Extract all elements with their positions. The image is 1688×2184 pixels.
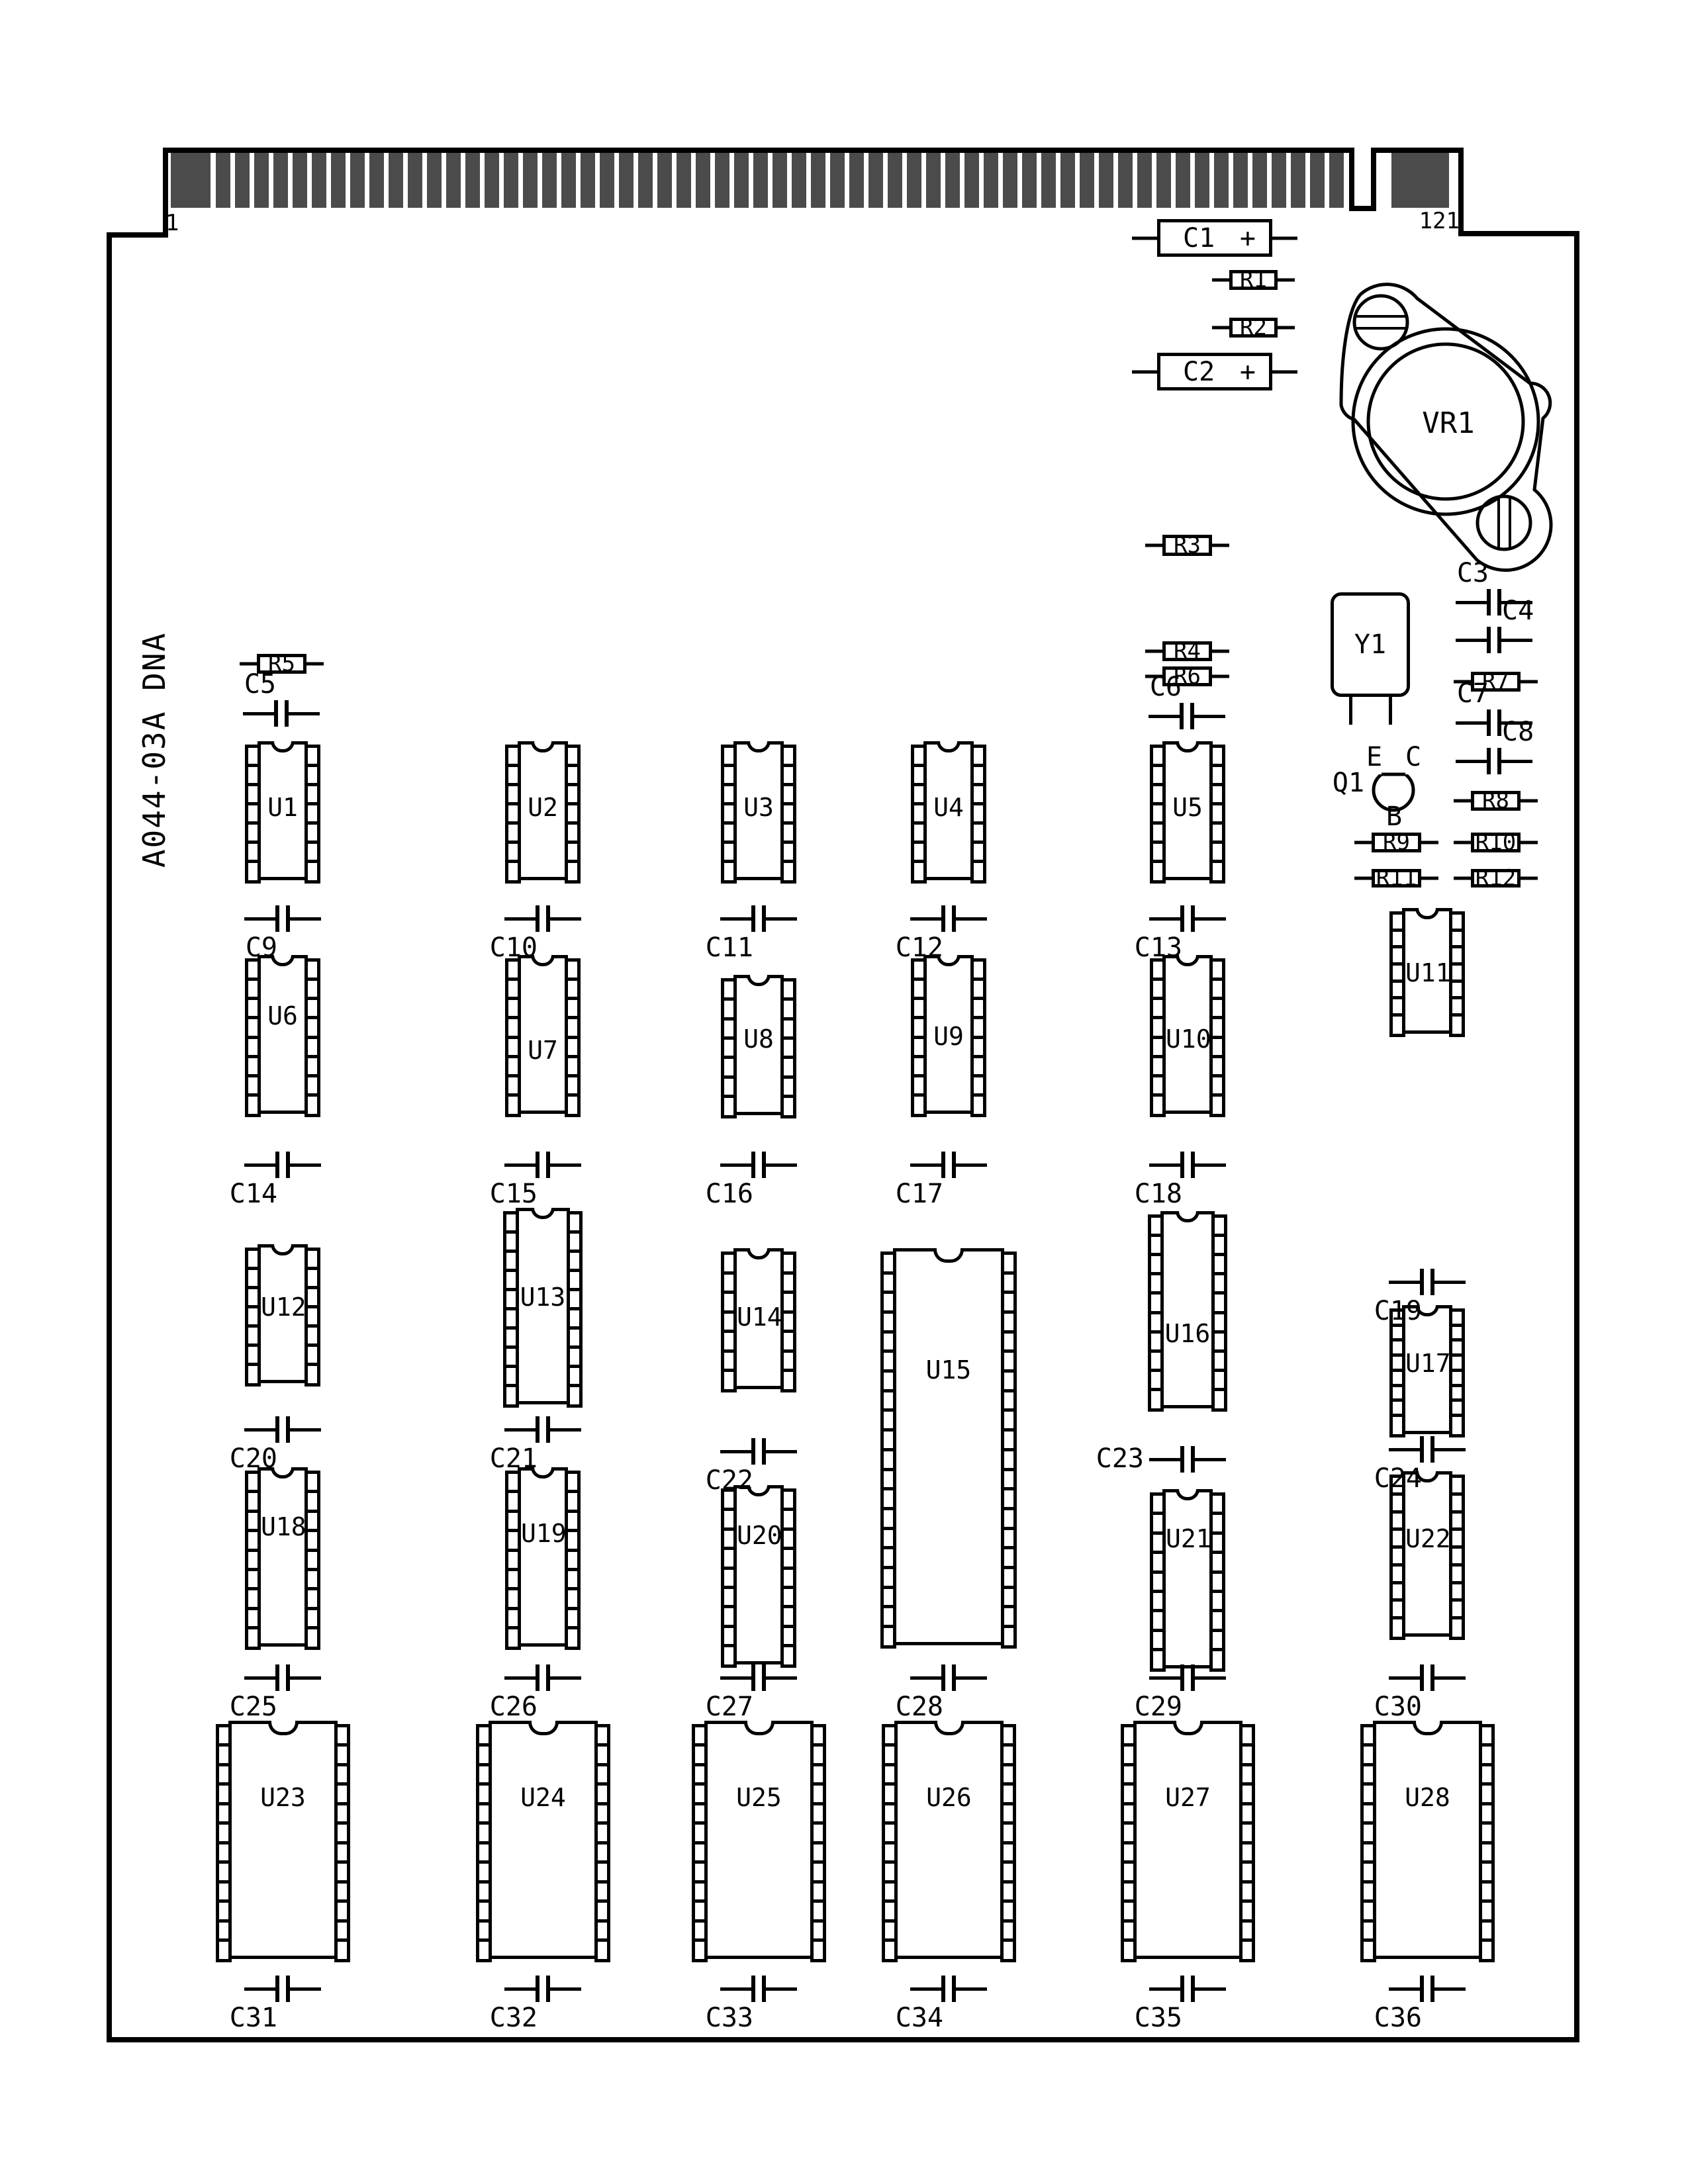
capacitor-C31: C31 <box>244 1976 321 2002</box>
capacitor-plate <box>1191 1664 1195 1691</box>
R2-label: R2 <box>1240 314 1267 341</box>
U15-label: U15 <box>896 1357 1001 1383</box>
capacitor-lead <box>289 712 320 715</box>
ic-pin <box>565 1626 581 1650</box>
capacitor-plate <box>751 905 755 932</box>
capacitor-plate <box>274 700 278 727</box>
ic-pin <box>970 860 986 884</box>
C1-polarity-mark: + <box>1240 223 1256 253</box>
C14-label: C14 <box>230 1181 277 1207</box>
ic-U6: U6 <box>258 955 308 1114</box>
capacitor-plate <box>941 905 945 932</box>
ic-pin <box>692 1938 708 1962</box>
U4-label: U4 <box>927 795 970 820</box>
connector-fingers <box>216 153 1348 208</box>
capacitor-C27: C27 <box>720 1664 797 1691</box>
capacitor-plate <box>1497 589 1501 615</box>
resistor-lead <box>1145 650 1164 653</box>
ic-notch <box>1415 908 1439 919</box>
ic-pin <box>1121 1938 1137 1962</box>
capacitor-plate <box>751 1438 755 1465</box>
ic-pin <box>216 1938 232 1962</box>
capacitor-lead <box>244 1428 275 1432</box>
C17-label: C17 <box>896 1181 943 1207</box>
capacitor-plate <box>275 1152 279 1178</box>
ic-U9: U9 <box>923 955 974 1114</box>
capacitor-plate <box>1180 703 1184 729</box>
ic-U26: U26 <box>894 1721 1004 1959</box>
C35-label: C35 <box>1135 2005 1182 2031</box>
ic-pin <box>721 860 737 884</box>
capacitor-plate <box>1430 1436 1434 1463</box>
ic-U2: U2 <box>518 741 568 880</box>
capacitor-plate <box>1191 1976 1195 2002</box>
resistor-lead <box>1145 544 1164 547</box>
capacitor-C23: C23 <box>1149 1446 1226 1473</box>
U21-label: U21 <box>1166 1526 1209 1551</box>
capacitor-plate <box>751 1664 755 1691</box>
ic-pin <box>565 1093 581 1117</box>
capacitor-lead <box>1149 715 1180 718</box>
ic-pin <box>1389 1616 1405 1640</box>
ic-pin <box>245 860 261 884</box>
capacitor-plate <box>952 905 956 932</box>
C7-label: C7 <box>1457 680 1489 707</box>
ic-notch <box>271 741 295 752</box>
capacitor-lead <box>766 917 797 921</box>
capacitor-lead <box>1149 1163 1180 1167</box>
resistor-lead <box>1519 877 1538 880</box>
ic-U21: U21 <box>1162 1489 1213 1668</box>
U27-label: U27 <box>1137 1785 1239 1810</box>
ic-U13: U13 <box>516 1208 570 1404</box>
capacitor-plate <box>275 905 279 932</box>
C19-label: C19 <box>1374 1298 1422 1324</box>
capacitor-plate <box>275 1664 279 1691</box>
C12-label: C12 <box>896 934 943 961</box>
C3-label: C3 <box>1457 560 1489 586</box>
q1-label: Q1 <box>1321 770 1376 796</box>
capacitor-lead <box>766 1450 797 1453</box>
capacitor-C24: C24 <box>1389 1436 1466 1463</box>
vr1-label: VR1 <box>1409 409 1488 438</box>
capacitor-plate <box>941 1152 945 1178</box>
U18-label: U18 <box>261 1514 305 1539</box>
U9-label: U9 <box>927 1024 970 1049</box>
R10-label: R10 <box>1476 829 1516 856</box>
capacitor-lead <box>956 1163 987 1167</box>
resistor-R3: R3 <box>1162 535 1212 556</box>
ic-pin <box>565 860 581 884</box>
U25-label: U25 <box>708 1785 810 1810</box>
resistor-R8: R8 <box>1471 791 1521 811</box>
resistor-lead <box>1519 799 1538 803</box>
capacitor-plate <box>1487 627 1491 653</box>
capacitor-C14: C14 <box>244 1152 321 1178</box>
capacitor-lead <box>1149 1676 1180 1680</box>
U6-label: U6 <box>261 1003 305 1028</box>
ic-pin <box>780 1369 796 1392</box>
capacitor-C15: C15 <box>504 1152 581 1178</box>
capacitor-lead <box>550 1428 581 1432</box>
R11-label: R11 <box>1376 865 1417 891</box>
capacitor-lead <box>290 1163 321 1167</box>
ic-pin <box>305 860 320 884</box>
ic-pin <box>1209 860 1225 884</box>
ic-U23: U23 <box>228 1721 338 1959</box>
capacitor-plate <box>1497 748 1501 774</box>
capacitor-lead <box>720 1450 751 1453</box>
resistor-lead <box>1454 841 1472 844</box>
capacitor-plate <box>1191 1446 1195 1473</box>
capacitor-plate <box>1180 905 1184 932</box>
ic-pin <box>1150 860 1166 884</box>
capacitor-lead <box>956 1987 987 1991</box>
C30-label: C30 <box>1374 1694 1422 1720</box>
capacitor-plate <box>1420 1976 1424 2002</box>
capacitor-lead <box>1195 917 1226 921</box>
resistor-R1: R1 <box>1229 270 1278 290</box>
ic-pin <box>1150 1093 1166 1117</box>
ic-pin <box>1449 1414 1465 1437</box>
ic-pin <box>1479 1938 1495 1962</box>
capacitor-plate <box>1180 1446 1184 1473</box>
capacitor-lead <box>1501 760 1532 763</box>
C32-label: C32 <box>490 2005 538 2031</box>
C18-label: C18 <box>1135 1181 1182 1207</box>
C13-label: C13 <box>1135 934 1182 961</box>
U26-label: U26 <box>898 1785 1000 1810</box>
C15-label: C15 <box>490 1181 538 1207</box>
ic-notch <box>268 1721 299 1735</box>
ic-notch <box>1176 741 1199 752</box>
ic-pin <box>245 1626 261 1650</box>
ic-U16: U16 <box>1160 1211 1215 1408</box>
capacitor-lead <box>290 1676 321 1680</box>
ic-notch <box>934 1721 964 1735</box>
capacitor-plate <box>1487 748 1491 774</box>
U8-label: U8 <box>737 1026 780 1052</box>
C2-polarity-mark: + <box>1240 357 1256 387</box>
C8-label: C8 <box>1502 719 1534 745</box>
capacitor-lead <box>504 1428 536 1432</box>
capacitor-plate <box>751 1152 755 1178</box>
capacitor-C25: C25 <box>244 1664 321 1691</box>
capacitor-C35: C35 <box>1149 1976 1226 2002</box>
C16-label: C16 <box>706 1181 753 1207</box>
C31-label: C31 <box>230 2005 277 2031</box>
capacitor-lead <box>1195 1987 1226 1991</box>
pcb-assembly-diagram: 1 121 A044-03A DNA Y1 VR1 E C Q1 B U1U2U… <box>0 0 1688 2184</box>
C23-label: C23 <box>1096 1445 1144 1472</box>
U12-label: U12 <box>261 1295 305 1320</box>
capacitor-lead <box>1456 601 1487 604</box>
capacitor-C13: C13 <box>1149 905 1226 932</box>
capacitor-lead <box>550 1987 581 1991</box>
ic-U28: U28 <box>1373 1721 1482 1959</box>
ic-pin <box>505 1093 521 1117</box>
q1-base-label: B <box>1381 803 1407 830</box>
ic-pin <box>911 1093 927 1117</box>
capacitor-lead <box>1456 760 1487 763</box>
capacitor-plate <box>1497 709 1501 736</box>
capacitor-plate <box>536 1152 539 1178</box>
capacitor-lead <box>1149 1458 1180 1461</box>
capacitor-lead <box>910 1163 941 1167</box>
capacitor-C8: C8 <box>1456 748 1532 774</box>
capacitor-plate <box>286 1152 290 1178</box>
capacitor-lead <box>956 1676 987 1680</box>
U7-label: U7 <box>521 1038 565 1063</box>
capacitor-lead <box>1194 715 1225 718</box>
capacitor-plate <box>1180 1664 1184 1691</box>
capacitor-lead <box>550 1676 581 1680</box>
ic-pin <box>1001 1625 1017 1649</box>
capacitor-plate <box>941 1976 945 2002</box>
capacitor-plate <box>941 1664 945 1691</box>
C33-label: C33 <box>706 2005 753 2031</box>
capacitor-lead <box>1434 1676 1466 1680</box>
capacitor-lead <box>910 917 941 921</box>
ic-U4: U4 <box>923 741 974 880</box>
connector-pin1-label: 1 <box>165 212 179 234</box>
U17-label: U17 <box>1405 1351 1449 1376</box>
C10-label: C10 <box>490 934 538 961</box>
capacitor-plate <box>1487 589 1491 615</box>
U22-label: U22 <box>1405 1526 1449 1551</box>
C9-label: C9 <box>246 934 277 961</box>
C26-label: C26 <box>490 1694 538 1720</box>
capacitor-lead <box>1149 917 1180 921</box>
capacitor-lead <box>720 1676 751 1680</box>
y1-label: Y1 <box>1354 629 1386 660</box>
R1-label: R1 <box>1240 267 1267 293</box>
crystal-y1: Y1 <box>1331 592 1410 697</box>
capacitor-lead <box>290 1428 321 1432</box>
C20-label: C20 <box>230 1445 277 1472</box>
connector-end-block-right <box>1391 153 1449 208</box>
ic-pin <box>1239 1938 1255 1962</box>
ic-pin <box>721 1369 737 1392</box>
ic-notch <box>937 741 961 752</box>
U13-label: U13 <box>519 1285 567 1310</box>
ic-pin <box>1148 1388 1164 1412</box>
capacitor-plate <box>762 905 766 932</box>
ic-U5: U5 <box>1162 741 1213 880</box>
ic-pin <box>780 1095 796 1118</box>
capacitor-C1: C1+ <box>1157 219 1272 257</box>
capacitor-lead <box>1456 721 1487 725</box>
U20-label: U20 <box>737 1523 780 1548</box>
capacitor-C19: C19 <box>1389 1269 1466 1295</box>
vr1-screw-bottom-right <box>1477 496 1530 549</box>
capacitor-lead <box>244 1163 275 1167</box>
capacitor-lead <box>504 1676 536 1680</box>
ic-pin <box>911 860 927 884</box>
capacitor-plate <box>546 1416 550 1443</box>
capacitor-lead <box>1456 639 1487 642</box>
capacitor-lead <box>720 1163 751 1167</box>
C27-label: C27 <box>706 1694 753 1720</box>
ic-pin <box>245 1363 261 1387</box>
capacitor-plate <box>546 1152 550 1178</box>
C1-label: C1 <box>1183 223 1215 253</box>
capacitor-C20: C20 <box>244 1416 321 1443</box>
capacitor-lead <box>290 1987 321 1991</box>
capacitor-C11: C11 <box>720 905 797 932</box>
capacitor-plate <box>1191 905 1195 932</box>
capacitor-plate <box>1430 1269 1434 1295</box>
capacitor-lead <box>766 1676 797 1680</box>
U16-label: U16 <box>1164 1321 1211 1346</box>
R9-label: R9 <box>1383 829 1410 856</box>
capacitor-lead <box>243 712 274 715</box>
ic-notch <box>1173 1721 1203 1735</box>
capacitor-C6: C6 <box>1149 703 1225 729</box>
capacitor-plate <box>762 1152 766 1178</box>
U3-label: U3 <box>737 795 780 820</box>
ic-U1: U1 <box>258 741 308 880</box>
capacitor-plate <box>762 1976 766 2002</box>
ic-pin <box>503 1384 519 1408</box>
capacitor-plate <box>275 1416 279 1443</box>
capacitor-lead <box>1501 639 1532 642</box>
capacitor-plate <box>952 1664 956 1691</box>
capacitor-C10: C10 <box>504 905 581 932</box>
C25-label: C25 <box>230 1694 277 1720</box>
capacitor-lead <box>1271 370 1297 373</box>
C29-label: C29 <box>1135 1694 1182 1720</box>
ic-pin <box>880 1625 896 1649</box>
ic-U7: U7 <box>518 955 568 1114</box>
capacitor-lead <box>1195 1458 1226 1461</box>
C5-label: C5 <box>244 671 276 698</box>
resistor-lead <box>1211 675 1229 678</box>
ic-U22: U22 <box>1402 1471 1452 1637</box>
R8-label: R8 <box>1482 788 1509 814</box>
capacitor-plate <box>1190 703 1194 729</box>
capacitor-plate <box>952 1976 956 2002</box>
capacitor-lead <box>720 917 751 921</box>
capacitor-plate <box>751 1976 755 2002</box>
ic-U14: U14 <box>733 1248 784 1389</box>
capacitor-C5: C5 <box>243 700 320 727</box>
resistor-lead <box>1519 841 1538 844</box>
resistor-lead <box>1211 544 1229 547</box>
ic-pin <box>780 860 796 884</box>
resistor-lead <box>1276 326 1295 330</box>
ic-pin <box>505 1626 521 1650</box>
resistor-lead <box>1212 279 1231 282</box>
U1-label: U1 <box>261 795 305 820</box>
capacitor-C36: C36 <box>1389 1976 1466 2002</box>
capacitor-C18: C18 <box>1149 1152 1226 1178</box>
q1-collector-label: C <box>1400 744 1427 770</box>
ic-pin <box>305 1626 320 1650</box>
capacitor-lead <box>504 1163 536 1167</box>
capacitor-plate <box>546 1976 550 2002</box>
C34-label: C34 <box>896 2005 943 2031</box>
ic-pin <box>970 1093 986 1117</box>
ic-notch <box>528 1721 559 1735</box>
ic-pin <box>567 1384 583 1408</box>
ic-notch <box>271 1244 295 1255</box>
capacitor-lead <box>1434 1987 1466 1991</box>
vr1-screw-top-left <box>1354 296 1407 349</box>
capacitor-lead <box>1132 236 1158 240</box>
capacitor-lead <box>244 1676 275 1680</box>
capacitor-plate <box>1430 1664 1434 1691</box>
ic-pin <box>1449 1013 1465 1037</box>
ic-U27: U27 <box>1133 1721 1243 1959</box>
ic-U3: U3 <box>733 741 784 880</box>
capacitor-lead <box>550 917 581 921</box>
ic-U10: U10 <box>1162 955 1213 1114</box>
C11-label: C11 <box>706 934 753 961</box>
capacitor-C21: C21 <box>504 1416 581 1443</box>
resistor-R11: R11 <box>1372 869 1421 887</box>
ic-pin <box>476 1938 492 1962</box>
capacitor-plate <box>546 905 550 932</box>
resistor-R10: R10 <box>1471 833 1521 852</box>
resistor-lead <box>1211 650 1229 653</box>
y1-lead <box>1349 697 1352 725</box>
capacitor-lead <box>1271 236 1297 240</box>
capacitor-lead <box>910 1676 941 1680</box>
capacitor-plate <box>1420 1269 1424 1295</box>
resistor-R12: R12 <box>1471 869 1521 887</box>
capacitor-lead <box>504 1987 536 1991</box>
ic-U19: U19 <box>518 1467 568 1647</box>
capacitor-plate <box>762 1664 766 1691</box>
resistor-lead <box>1276 279 1295 282</box>
capacitor-lead <box>1434 1281 1466 1284</box>
capacitor-lead <box>1389 1987 1420 1991</box>
C24-label: C24 <box>1374 1465 1422 1492</box>
U28-label: U28 <box>1376 1785 1479 1810</box>
ic-notch <box>744 1721 774 1735</box>
capacitor-C28: C28 <box>910 1664 987 1691</box>
C6-label: C6 <box>1150 674 1182 700</box>
capacitor-plate <box>285 700 289 727</box>
ic-pin <box>810 1938 826 1962</box>
ic-U8: U8 <box>733 975 784 1115</box>
resistor-lead <box>305 662 324 666</box>
ic-U15: U15 <box>893 1248 1004 1645</box>
ic-U20: U20 <box>733 1485 784 1664</box>
capacitor-plate <box>1180 1152 1184 1178</box>
ic-pin <box>1360 1938 1376 1962</box>
capacitor-C32: C32 <box>504 1976 581 2002</box>
capacitor-plate <box>1420 1664 1424 1691</box>
R12-label: R12 <box>1476 865 1516 891</box>
ic-U11: U11 <box>1402 908 1452 1034</box>
capacitor-plate <box>536 1664 539 1691</box>
capacitor-lead <box>766 1163 797 1167</box>
capacitor-plate <box>1420 1436 1424 1463</box>
resistor-R2: R2 <box>1229 318 1278 338</box>
ic-pin <box>1209 1093 1225 1117</box>
ic-U18: U18 <box>258 1467 308 1647</box>
capacitor-C17: C17 <box>910 1152 987 1178</box>
ic-U24: U24 <box>489 1721 598 1959</box>
capacitor-plate <box>286 1416 290 1443</box>
U11-label: U11 <box>1405 960 1449 985</box>
capacitor-lead <box>1195 1163 1226 1167</box>
capacitor-C22: C22 <box>720 1438 797 1465</box>
connector-pin121-label: 121 <box>1403 210 1460 232</box>
capacitor-C4: C4 <box>1456 627 1532 653</box>
